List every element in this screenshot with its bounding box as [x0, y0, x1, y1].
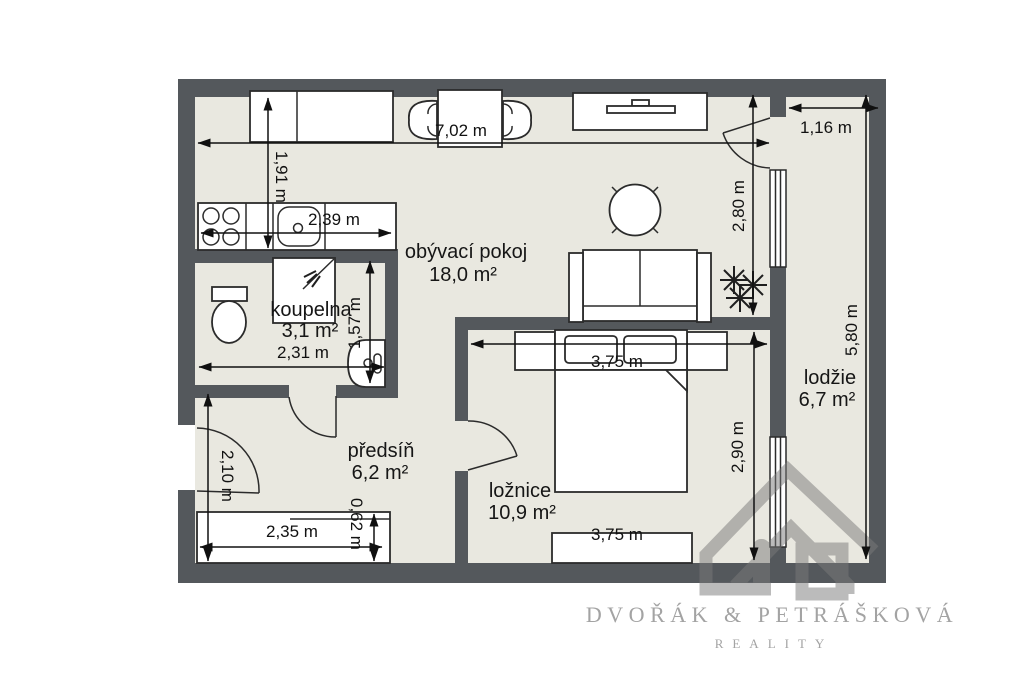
toilet [212, 287, 247, 343]
dim-label: 7,02 m [435, 121, 487, 140]
room-name: lodžie [804, 367, 856, 389]
dim-label: 2,90 m [728, 421, 747, 473]
tv-stand [573, 93, 707, 130]
dim-label: 2,31 m [277, 343, 329, 362]
dim-label: 2,35 m [266, 522, 318, 541]
living-room-window [770, 170, 786, 267]
brand-name: DVOŘÁK & PETRÁŠKOVÁ [586, 602, 958, 627]
dim-label: 2,39 m [308, 210, 360, 229]
brand-logo: DVOŘÁK & PETRÁŠKOVÁ REALITY [586, 602, 958, 651]
daybed [250, 91, 393, 142]
room-area: 6,7 m² [799, 389, 856, 411]
room-area: 18,0 m² [429, 264, 497, 286]
sofa [569, 250, 711, 322]
kitchen-counter [198, 203, 396, 250]
dim-label: 1,91 m [272, 151, 291, 203]
dim-label: 3,75 m [591, 352, 643, 371]
dim-label: 1,16 m [800, 118, 852, 137]
room-label-loggia: lodžie 6,7 m² [799, 367, 856, 411]
room-area: 3,1 m² [282, 320, 339, 342]
dim-label: 0,62 m [347, 498, 366, 550]
dim-label: 2,10 m [218, 450, 237, 502]
dim-label: 2,80 m [729, 180, 748, 232]
room-name: obývací pokoj [405, 241, 527, 263]
brand-tagline: REALITY [715, 636, 834, 651]
room-area: 6,2 m² [352, 462, 409, 484]
dim-label: 3,75 m [591, 525, 643, 544]
dimension-bedroom-width-bottom: 3,75 m [591, 525, 643, 544]
room-label-hall: předsíň 6,2 m² [348, 440, 415, 484]
room-area: 10,9 m² [488, 502, 556, 524]
room-name: koupelna [270, 299, 352, 321]
room-label-bedroom: ložnice 10,9 m² [488, 480, 556, 524]
coffee-table [610, 185, 661, 236]
dim-label: 5,80 m [842, 304, 861, 356]
room-name: předsíň [348, 440, 415, 462]
floorplan-image: 7,02 m 1,91 m 2,39 m 1,16 m 2,80 m 5,80 … [0, 0, 1024, 683]
room-name: ložnice [489, 480, 551, 502]
